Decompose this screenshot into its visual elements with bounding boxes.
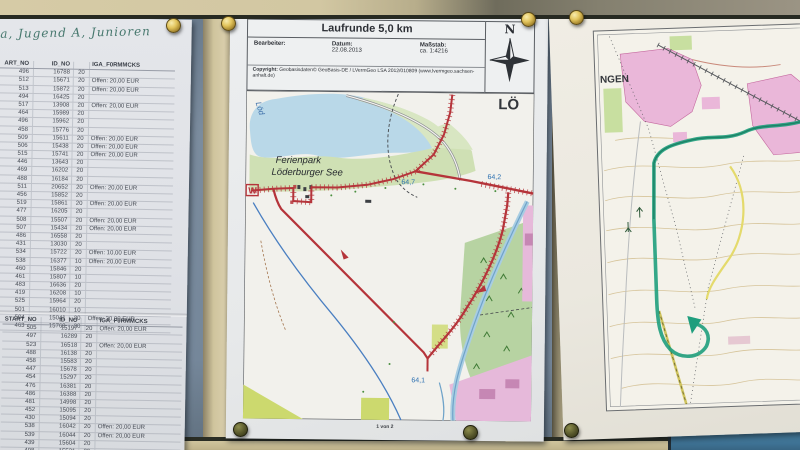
km-label: 64,1	[411, 377, 425, 384]
town-label-partial: LÖ	[498, 96, 519, 113]
col-header: ID_NO	[42, 317, 82, 325]
km-label: 64,2	[487, 174, 501, 181]
dark-pin	[564, 423, 579, 438]
town-label-partial: NGEN	[600, 74, 629, 86]
col-header: ID_NO	[34, 61, 74, 69]
laufrunde-map-sheet: Laufrunde 5,0 km Bearbeiter: Datum: 22.0…	[226, 6, 549, 441]
table-body: 496 16788 20 512 15671 20 Offen: 20,00 E…	[0, 69, 175, 334]
route-map: W Ferienpark Löderburger See LÖ Löd 64,7…	[243, 91, 534, 422]
col-header: START_NO	[3, 317, 42, 325]
brass-pin	[166, 18, 181, 33]
table-body: 505 15197 20 Offen: 20,00 EUR 497 16289 …	[0, 325, 182, 450]
col-header: IGA_F0RMMCKS	[90, 62, 175, 71]
copyright-note: Copyright: Geobasisdaten© GeoBasis-DE / …	[248, 65, 486, 82]
dark-pin	[233, 422, 248, 437]
brass-pin	[521, 12, 536, 27]
massstab-field: Maßstab: ca. 1:4216	[414, 42, 486, 67]
results-table-1: ART_NO ID_NO IGA_F0RMMCKS 496 16788 20 5…	[0, 60, 175, 333]
board-rail-top	[0, 0, 800, 19]
map-header-box: Laufrunde 5,0 km Bearbeiter: Datum: 22.0…	[246, 19, 487, 94]
overview-map-sheet: NGEN	[549, 4, 800, 441]
page-number: 1 von 2	[226, 422, 544, 431]
compass-box: N	[484, 21, 535, 94]
km-label: 64,7	[401, 179, 415, 186]
brass-pin	[569, 10, 584, 25]
brass-pin	[221, 16, 236, 31]
col-header: IGA_F0RMMCKS	[98, 318, 183, 327]
datum-field: Datum: 22.08.2013	[326, 41, 414, 66]
notice-board-photo: ga, Jugend A, Junioren ART_NO ID_NO IGA_…	[0, 0, 800, 450]
ferienpark-label: Ferienpark	[276, 155, 323, 166]
bearbeiter-field: Bearbeiter:	[248, 41, 326, 66]
col-header: ART_NO	[0, 60, 34, 68]
svg-text:Löderburger See: Löderburger See	[271, 167, 342, 179]
overview-map: NGEN	[549, 4, 800, 441]
svg-text:W: W	[248, 186, 257, 196]
compass-rose-icon	[489, 36, 530, 84]
results-list-sheet: ga, Jugend A, Junioren ART_NO ID_NO IGA_…	[0, 16, 192, 450]
dark-pin	[463, 425, 478, 440]
handwritten-note: ga, Jugend A, Junioren	[0, 24, 151, 41]
start-marker: W	[246, 185, 258, 196]
results-table-2: START_NO ID_NO IGA_F0RMMCKS 505 15197 20…	[0, 317, 182, 450]
